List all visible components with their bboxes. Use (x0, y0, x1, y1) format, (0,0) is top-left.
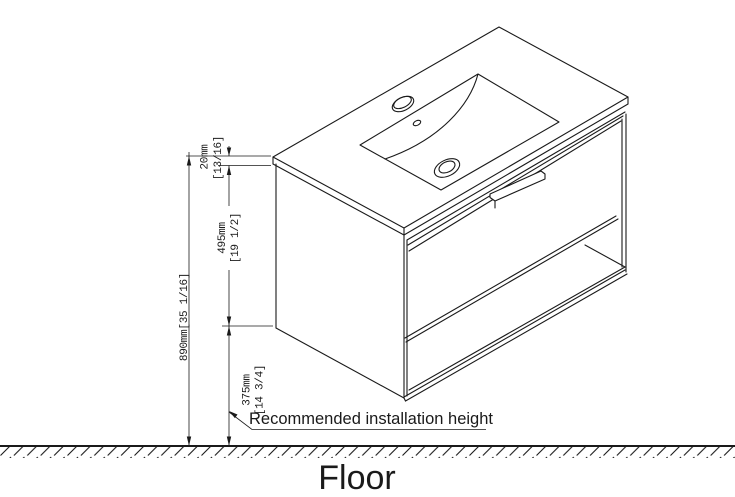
floor-hatching (0, 447, 735, 459)
installation-diagram: 20mm [13/16] 495mm [19 1/2] 890mm[35 1/1… (0, 0, 735, 497)
dimension-375 (227, 326, 231, 446)
cabinet-right-panel (622, 114, 626, 272)
dim-375mm-imperial-label: [14 3/4] (255, 365, 267, 415)
diagram-page: 20mm [13/16] 495mm [19 1/2] 890mm[35 1/1… (0, 0, 735, 497)
installation-note-label: Recommended installation height (249, 410, 493, 428)
drawer-bottom-edge (405, 216, 618, 342)
dim-20mm-imperial-label: [13/16] (213, 136, 225, 180)
dim-375mm-metric-label: 375mm (242, 374, 254, 406)
floor-text-label: Floor (318, 459, 395, 497)
dim-495mm-imperial-label: [19 1/2] (230, 213, 242, 263)
countertop-top-face (273, 27, 628, 228)
dim-495mm-metric-label: 495mm (217, 222, 229, 254)
dimension-labels: 20mm [13/16] 495mm [19 1/2] 890mm[35 1/1… (179, 136, 267, 415)
vanity-cabinet-drawing (273, 27, 628, 401)
dimension-20 (227, 146, 231, 156)
drawer-handle (490, 171, 545, 208)
cabinet-bottom-edges (404, 270, 627, 401)
cabinet-front-left-edge (404, 235, 407, 401)
floor (0, 446, 735, 458)
dim-890mm-label: 890mm[35 1/16] (179, 273, 191, 361)
dim-20mm-metric-label: 20mm (200, 144, 212, 170)
